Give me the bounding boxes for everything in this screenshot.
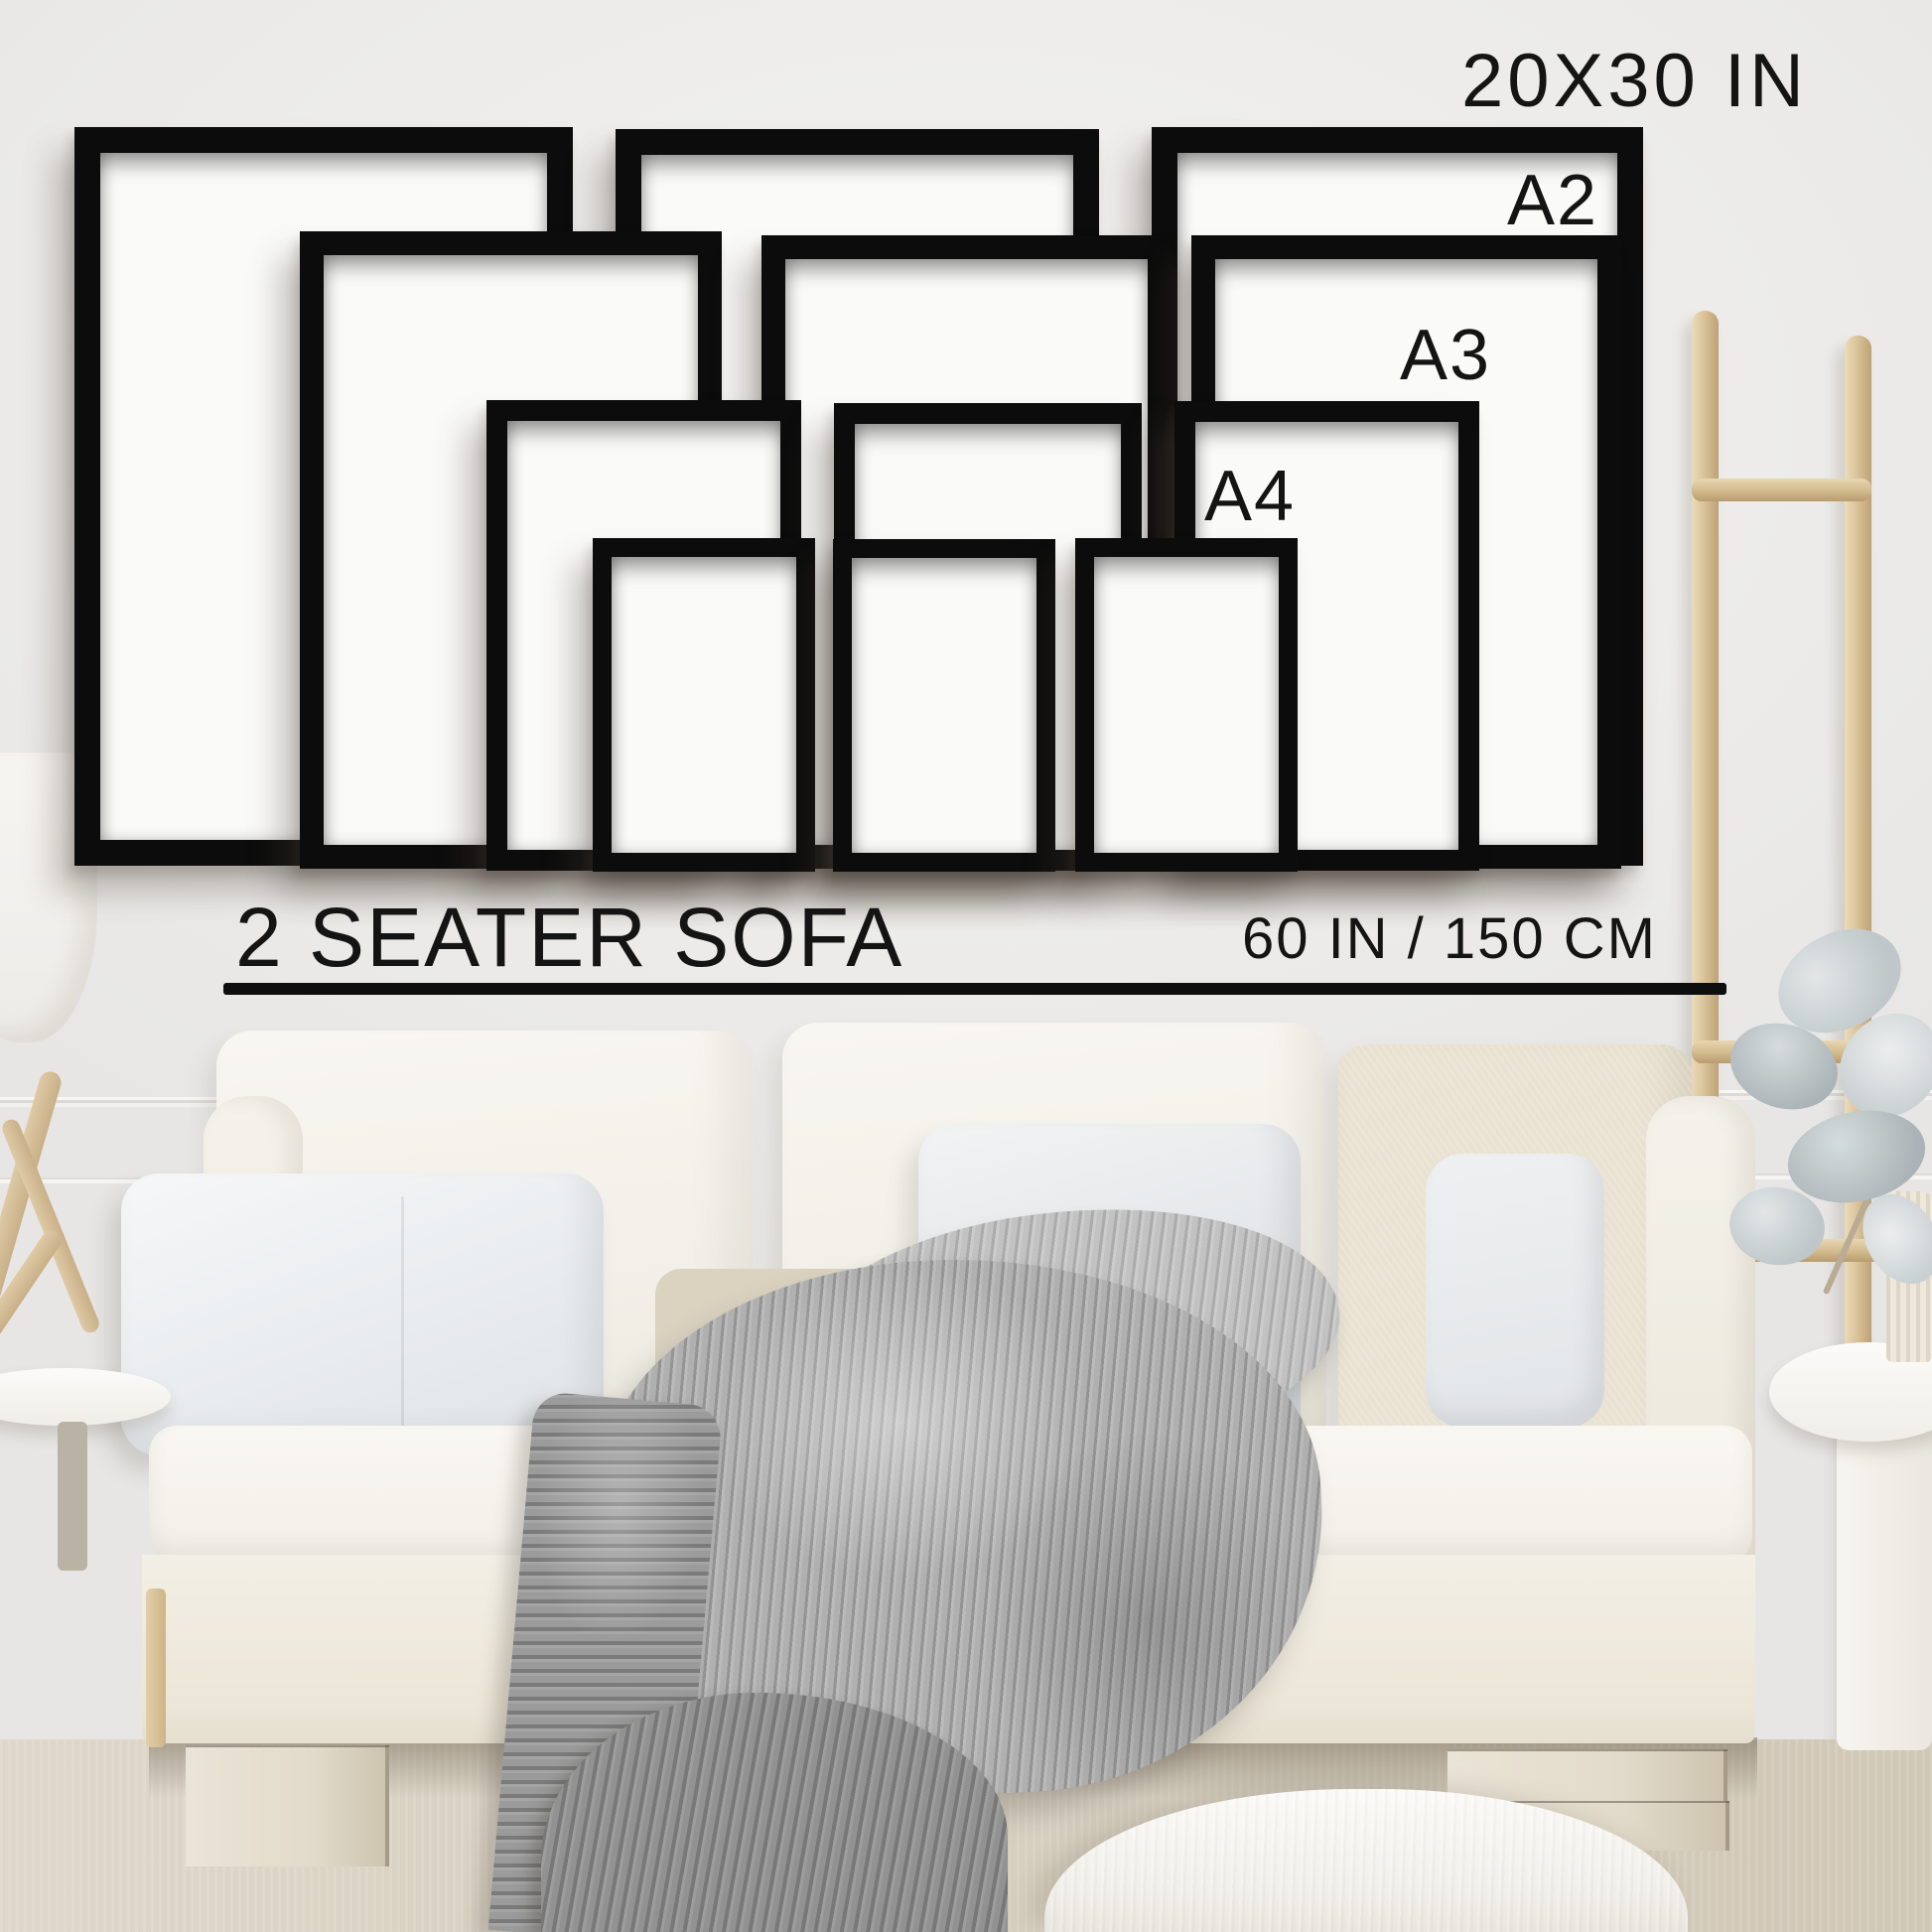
- size-label-a3: A3: [1400, 320, 1491, 391]
- frame-a4-right: [1075, 538, 1298, 872]
- room-scene: 20X30 IN A2 A3 A4 2 SEATER SOFA 60 IN / …: [0, 0, 1932, 1932]
- ladder-rung: [1692, 479, 1871, 501]
- side-table-left-leg-wood: [146, 1588, 166, 1747]
- size-label-20x30: 20X30 IN: [1461, 44, 1808, 119]
- throw-pillow-small-right: [1426, 1154, 1604, 1428]
- storage-box-left: [186, 1745, 389, 1866]
- frame-a4-center: [833, 539, 1055, 872]
- flat-box-right-top: [1448, 1749, 1727, 1801]
- frame-a4-left: [593, 538, 815, 872]
- side-table-right-pedestal: [1837, 1418, 1932, 1750]
- sofa-size-label: 2 SEATER SOFA: [235, 896, 903, 979]
- sofa-width-label: 60 IN / 150 CM: [1242, 910, 1657, 968]
- side-table-left-leg: [58, 1422, 87, 1571]
- sofa-width-line: [223, 983, 1726, 995]
- size-label-a2: A2: [1507, 165, 1598, 236]
- size-label-a4: A4: [1204, 461, 1296, 532]
- throw-pillow-white-left: [121, 1173, 604, 1455]
